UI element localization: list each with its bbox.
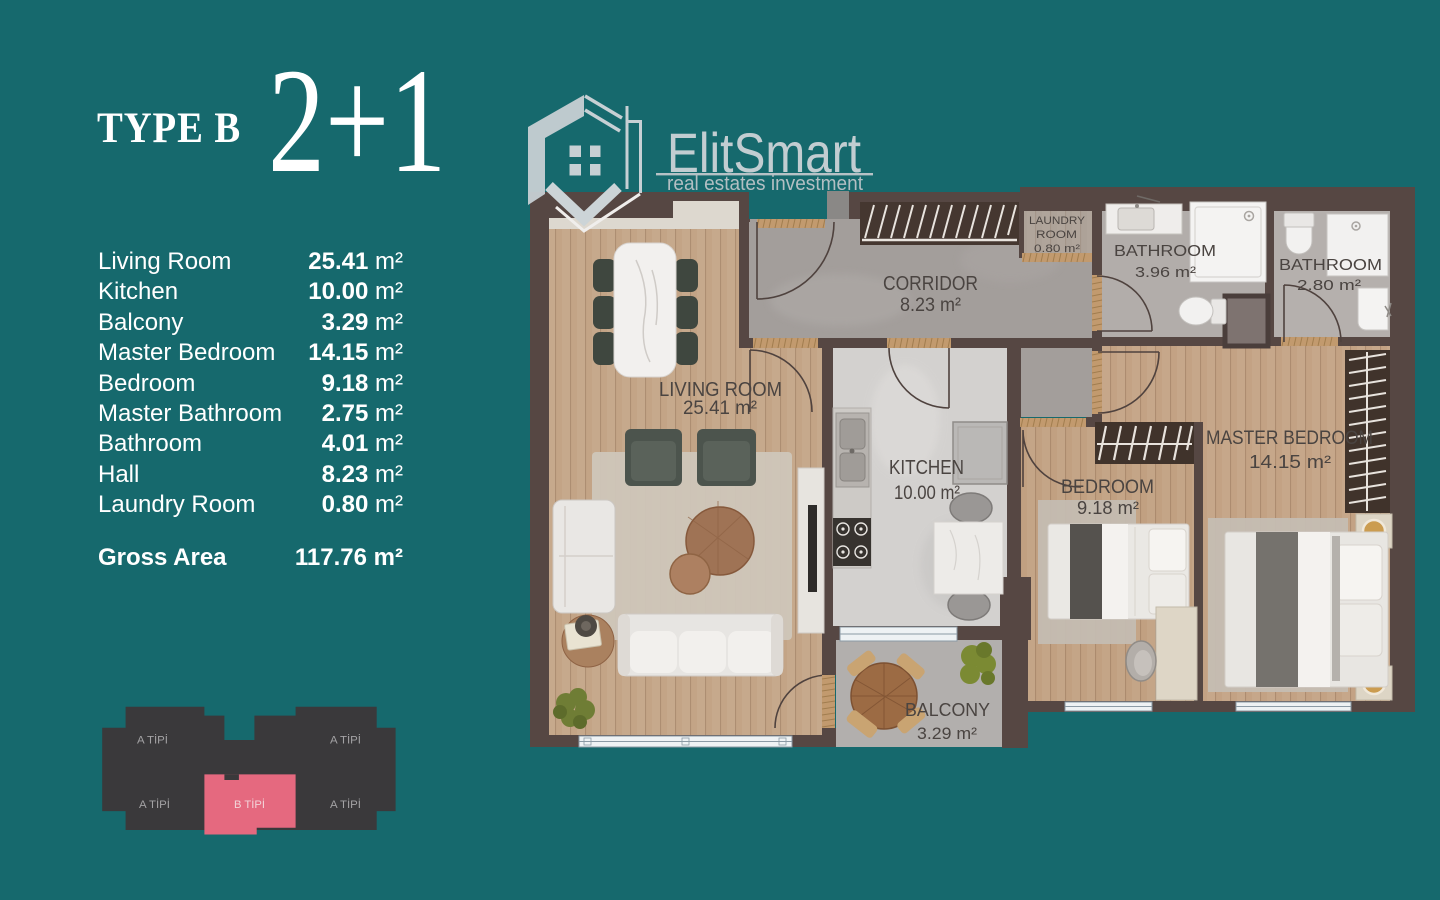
- svg-text:8.23 m²: 8.23 m²: [900, 295, 961, 316]
- svg-text:KITCHEN: KITCHEN: [889, 457, 964, 479]
- svg-text:BEDROOM: BEDROOM: [1061, 477, 1154, 498]
- svg-text:BATHROOM: BATHROOM: [1279, 257, 1382, 274]
- svg-text:9.18 m²: 9.18 m²: [1077, 498, 1139, 518]
- svg-text:real estates investment: real estates investment: [667, 173, 863, 195]
- svg-text:B TİPİ: B TİPİ: [234, 798, 265, 811]
- svg-text:2.80 m²: 2.80 m²: [1297, 277, 1361, 294]
- svg-text:BATHROOM: BATHROOM: [1114, 243, 1216, 260]
- svg-text:25.41 m²: 25.41 m²: [683, 398, 757, 419]
- svg-text:0.80 m²: 0.80 m²: [1034, 243, 1080, 255]
- svg-text:BALCONY: BALCONY: [905, 700, 990, 720]
- svg-text:CORRIDOR: CORRIDOR: [883, 273, 978, 295]
- svg-text:3.96 m²: 3.96 m²: [1135, 264, 1196, 281]
- svg-text:10.00 m²: 10.00 m²: [894, 483, 960, 504]
- svg-text:A TİPİ: A TİPİ: [330, 798, 361, 811]
- svg-text:A TİPİ: A TİPİ: [137, 734, 168, 747]
- svg-text:3.29 m²: 3.29 m²: [917, 724, 977, 743]
- svg-text:LAUNDRY: LAUNDRY: [1029, 215, 1086, 227]
- svg-text:MASTER BEDROOM: MASTER BEDROOM: [1206, 428, 1373, 449]
- svg-text:ROOM: ROOM: [1036, 229, 1077, 241]
- svg-text:A TİPİ: A TİPİ: [330, 734, 361, 747]
- svg-text:14.15 m²: 14.15 m²: [1249, 452, 1331, 472]
- svg-text:A TİPİ: A TİPİ: [139, 798, 170, 811]
